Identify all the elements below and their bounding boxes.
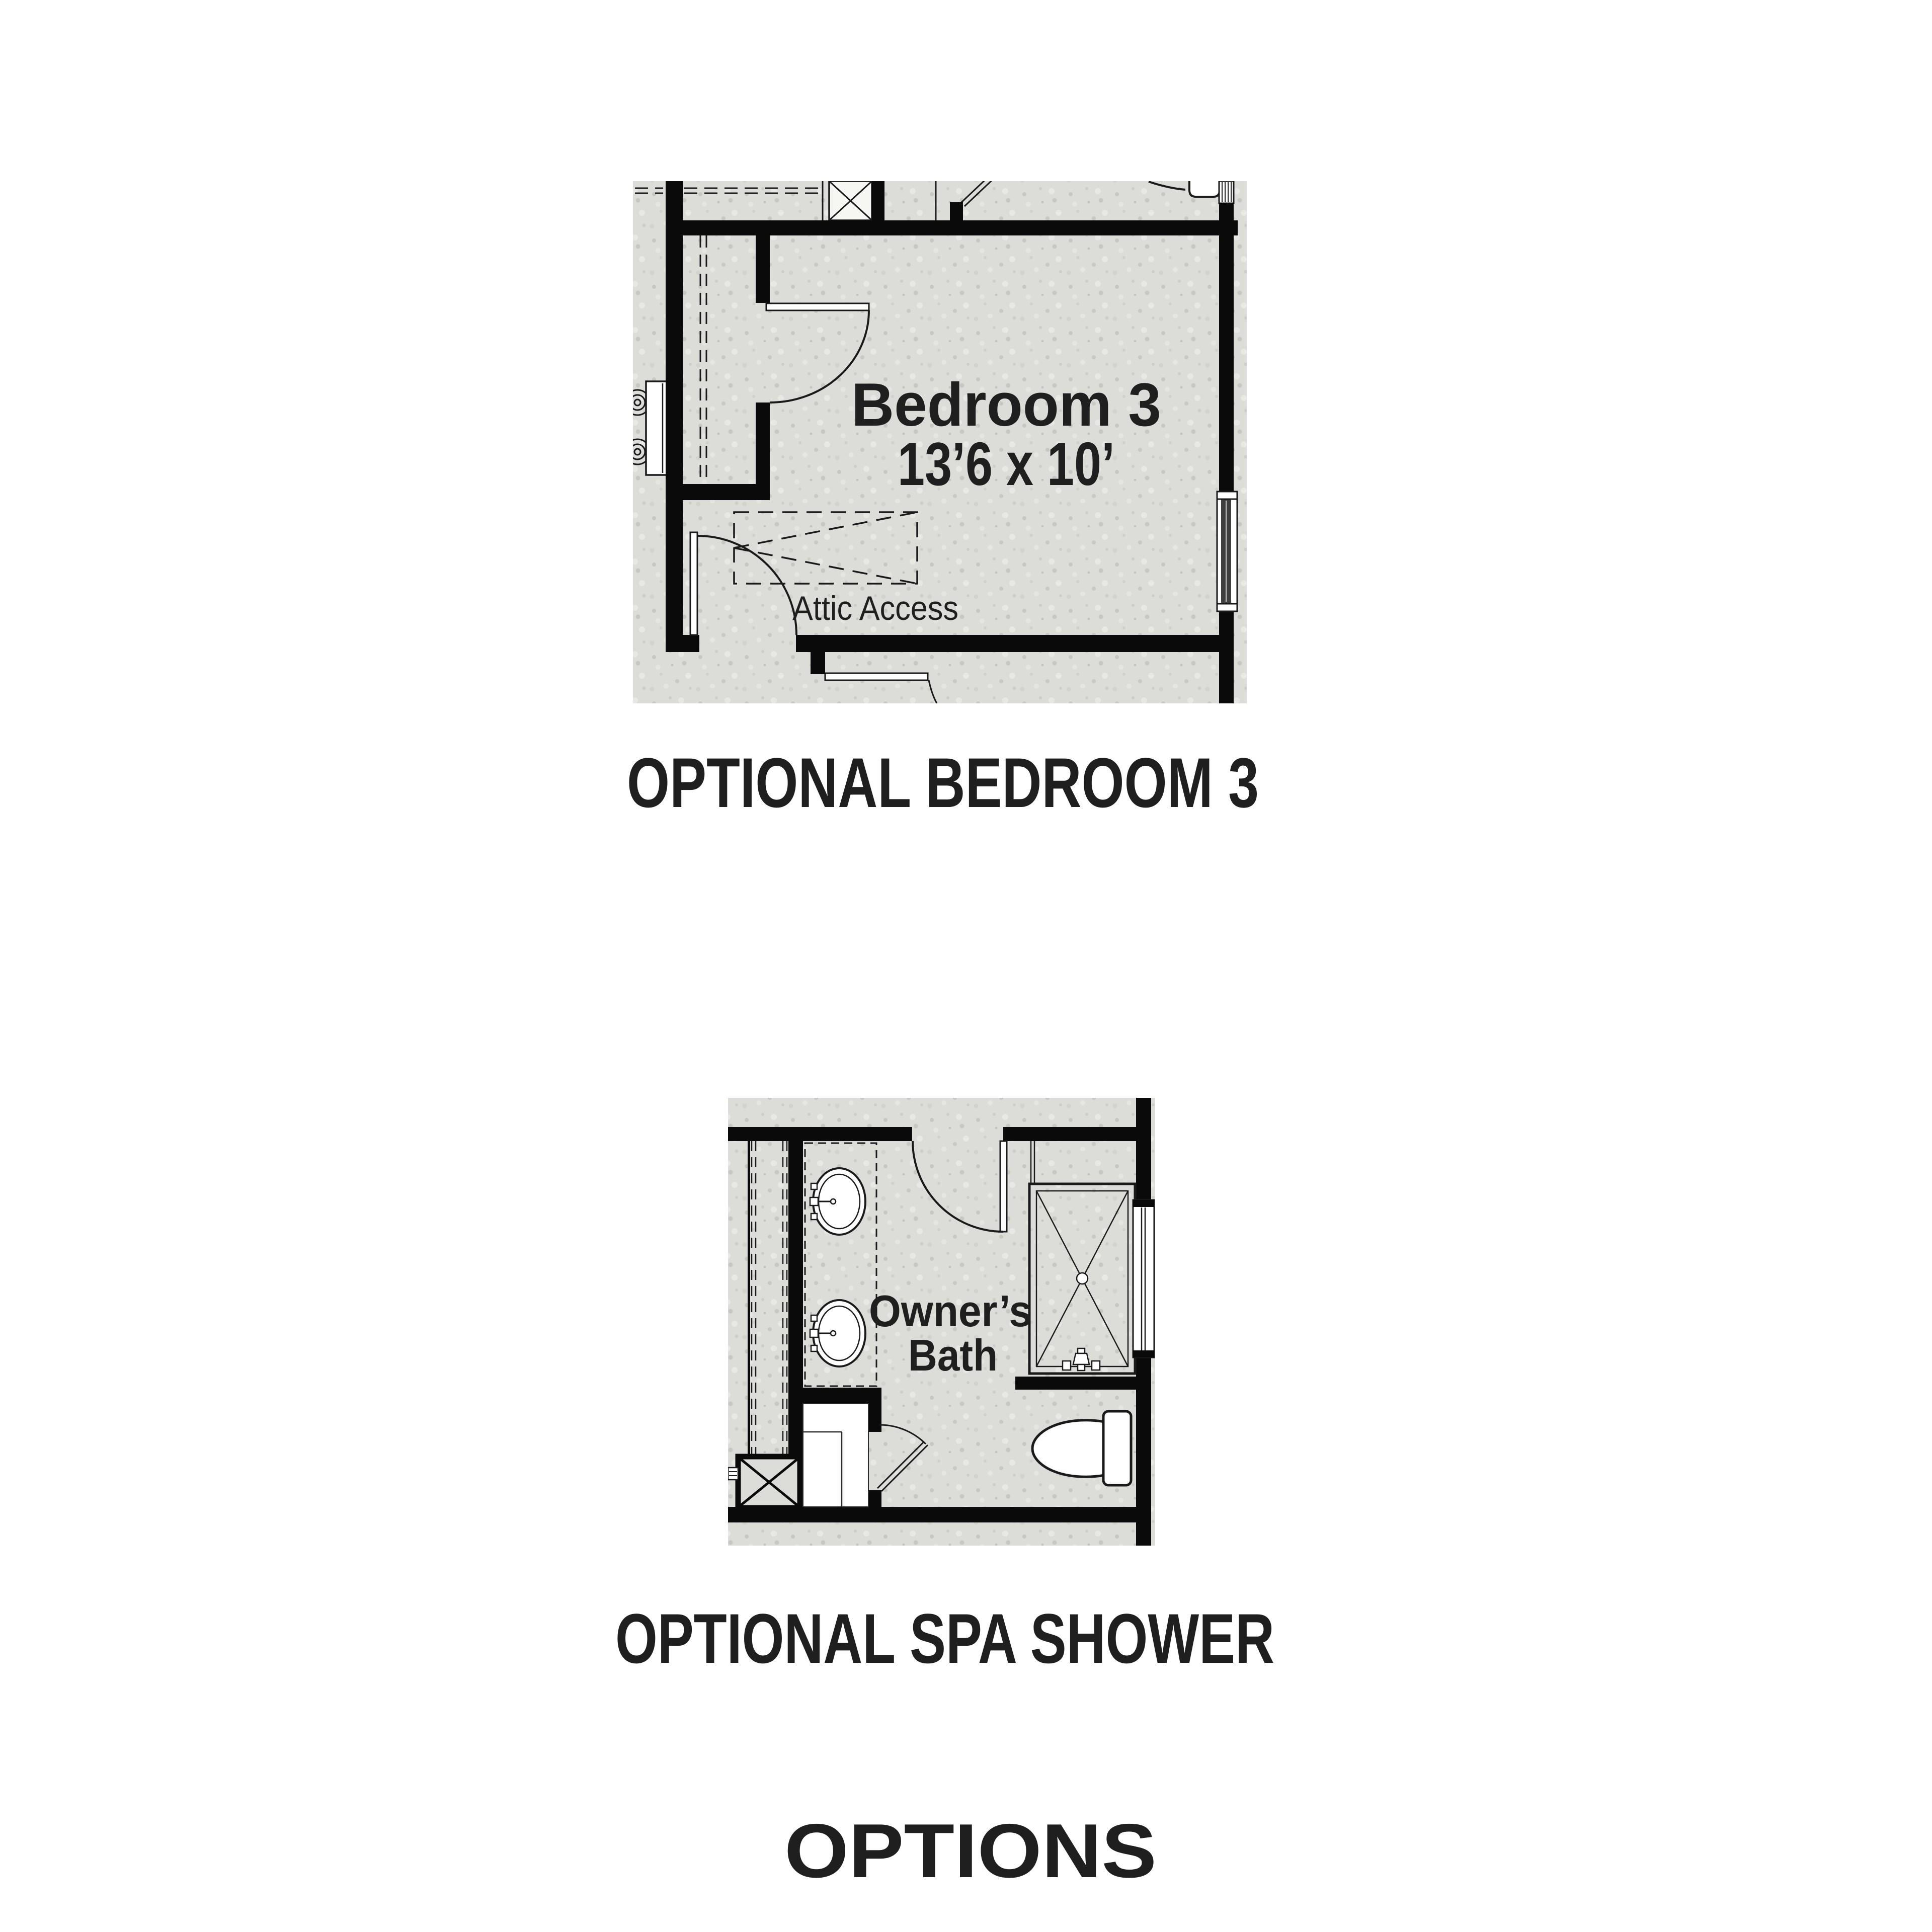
owners-bath-label-line2: Bath — [908, 1330, 998, 1380]
bedroom3-dimensions-label: 13’6 x 10’ — [898, 430, 1115, 498]
window-right-icon — [1133, 1200, 1154, 1357]
bedroom3-room-label: Bedroom 3 — [851, 370, 1161, 439]
caption-optional-bedroom-3: OPTIONAL BEDROOM 3 — [627, 743, 1259, 822]
chase-xbox-icon — [829, 181, 872, 220]
optional-bedroom-3-plan: Bedroom 3 13’6 x 10’ Attic Access OPTION… — [625, 177, 1259, 822]
floor-plan-canvas: Bedroom 3 13’6 x 10’ Attic Access OPTION… — [0, 0, 1932, 1932]
optional-spa-shower-plan: Owner’s Bath OPTIONAL SPA SHOWER — [615, 1098, 1274, 1678]
page-title-options: OPTIONS — [784, 1808, 1157, 1894]
caption-optional-spa-shower: OPTIONAL SPA SHOWER — [615, 1599, 1274, 1678]
options-sheet: Bedroom 3 13’6 x 10’ Attic Access OPTION… — [0, 0, 1932, 1932]
window-top-right-icon — [1219, 181, 1234, 203]
window-right-icon — [1217, 492, 1237, 611]
appliance-icon — [646, 381, 667, 475]
chase-xbox-icon — [728, 1457, 800, 1508]
attic-access-label: Attic Access — [792, 589, 958, 627]
water-closet-area — [803, 1404, 868, 1507]
owners-bath-label-line1: Owner’s — [869, 1286, 1032, 1336]
